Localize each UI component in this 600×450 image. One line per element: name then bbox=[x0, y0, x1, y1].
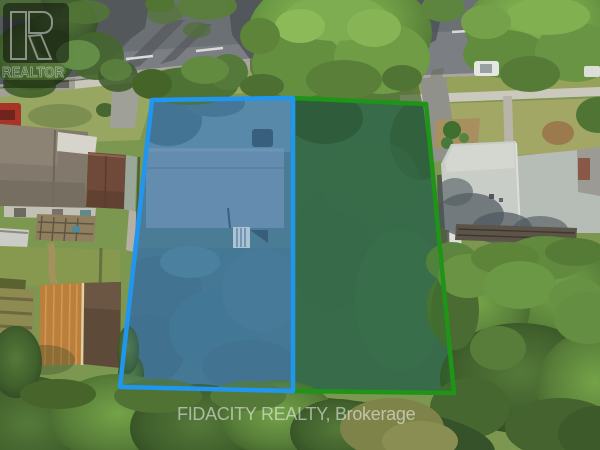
svg-text:REALTOR: REALTOR bbox=[2, 64, 64, 81]
svg-text:FIDACITY REALTY, Brokerage: FIDACITY REALTY, Brokerage bbox=[177, 404, 416, 424]
